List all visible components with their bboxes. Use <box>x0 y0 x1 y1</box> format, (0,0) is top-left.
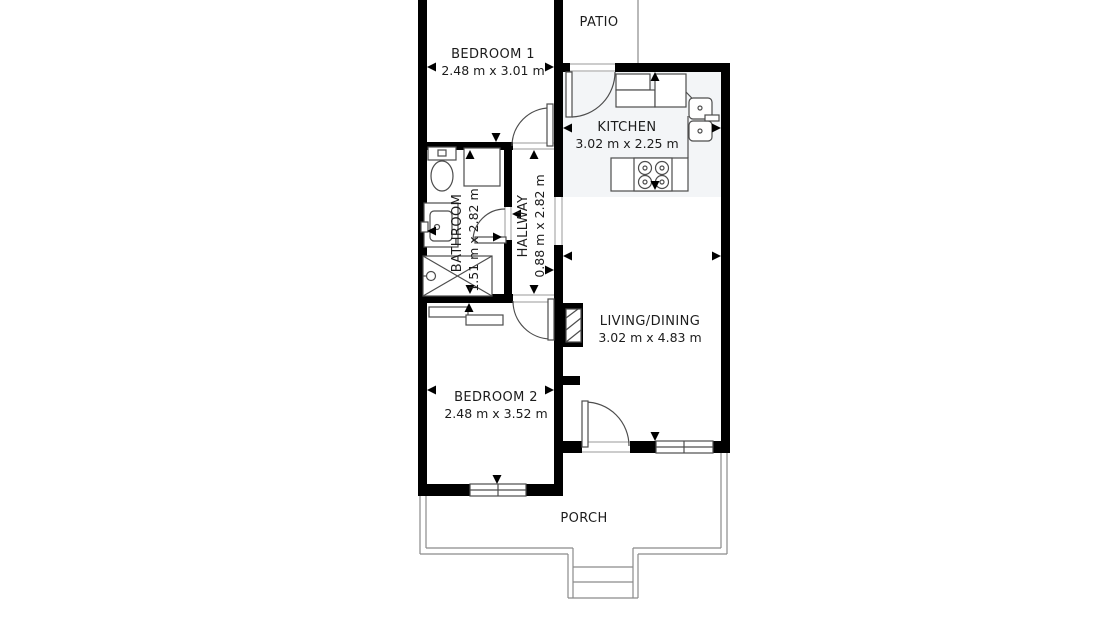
hallway-label: HALLWAY <box>516 195 531 258</box>
bedroom2-dims: 2.48 m x 3.52 m <box>444 406 547 421</box>
bedroom2-door-icon <box>513 299 554 340</box>
bedroom2-window <box>470 484 526 496</box>
floor-plan-page: BEDROOM 1 2.48 m x 3.01 m PATIO KITCHEN … <box>0 0 1110 626</box>
porch-steps <box>568 548 638 598</box>
bedroom1-door-icon <box>512 104 553 146</box>
stove-icon <box>611 158 688 191</box>
porch-label: PORCH <box>560 511 607 526</box>
wall-stub <box>554 376 580 385</box>
patio-label: PATIO <box>580 15 619 30</box>
floor-plan-svg: BEDROOM 1 2.48 m x 3.01 m PATIO KITCHEN … <box>0 0 1110 626</box>
bedroom2-label: BEDROOM 2 <box>454 390 538 405</box>
bathroom-dims: 1.51 m x 2.82 m <box>466 188 481 291</box>
bedroom1-dims: 2.48 m x 3.01 m <box>441 63 544 78</box>
bathroom-label: BATHROOM <box>450 194 465 272</box>
hallway-dims: 0.88 m x 2.82 m <box>532 174 547 277</box>
front-door-icon <box>582 401 629 447</box>
kitchen-label: KITCHEN <box>597 120 656 135</box>
living-label: LIVING/DINING <box>600 314 700 329</box>
toilet-icon <box>428 147 456 191</box>
bedroom1-label: BEDROOM 1 <box>451 47 535 62</box>
porch-outline <box>420 452 727 554</box>
living-window <box>656 441 713 453</box>
kitchen-dims: 3.02 m x 2.25 m <box>575 136 678 151</box>
fireplace-hatch <box>566 309 581 342</box>
living-dims: 3.02 m x 4.83 m <box>598 330 701 345</box>
